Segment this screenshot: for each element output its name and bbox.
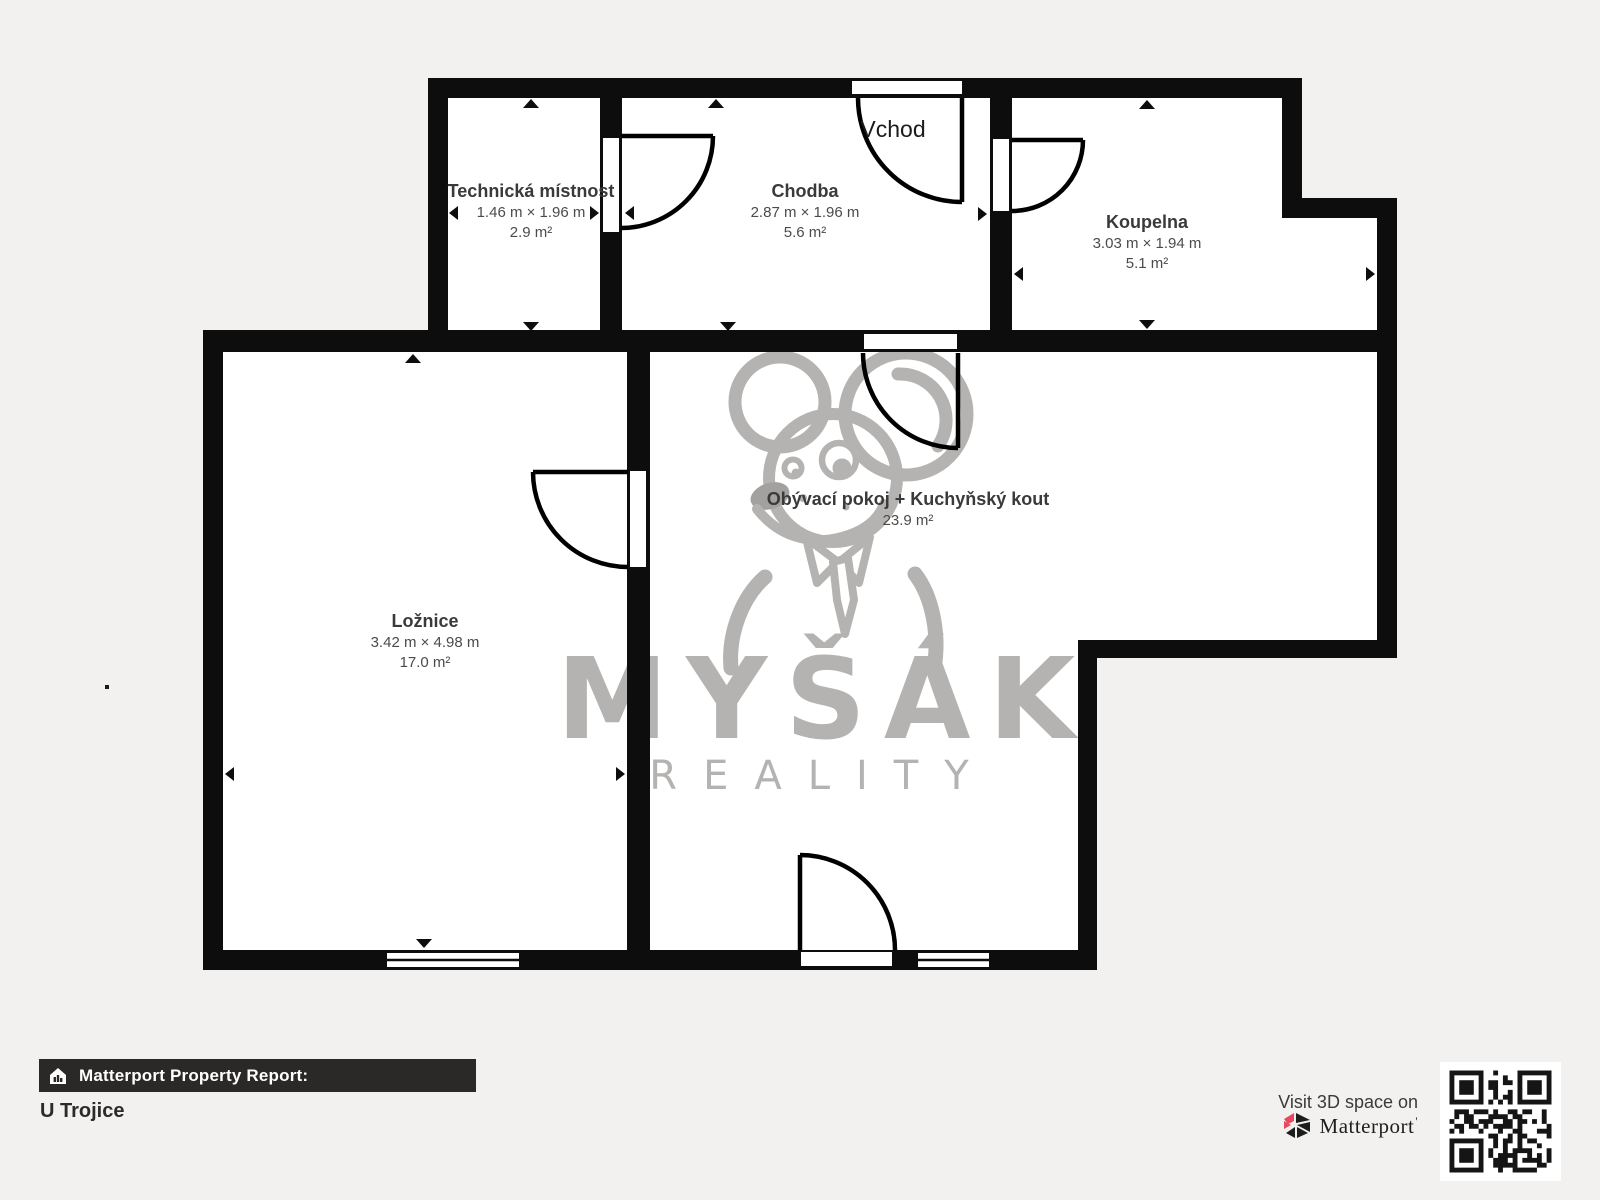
room-name: Obývací pokoj + Kuchyňský kout <box>767 489 1050 510</box>
qr-code <box>1440 1062 1561 1181</box>
loznice-door-opening <box>629 470 647 568</box>
room-name: Koupelna <box>1093 212 1202 233</box>
report-bar-label: Matterport Property Report: <box>79 1066 308 1086</box>
wall <box>1377 198 1397 658</box>
house-icon <box>49 1067 67 1085</box>
room-name: Ložnice <box>371 611 480 632</box>
room-area: 2.9 m² <box>448 224 615 242</box>
balcony-door-opening <box>800 951 893 967</box>
wall <box>203 330 1397 352</box>
visit-3d-text: Visit 3D space on <box>1278 1092 1418 1113</box>
wall <box>1078 640 1397 658</box>
watermark-subtitle-text: REALITY <box>649 753 994 799</box>
wall <box>627 330 650 970</box>
matterport-brand: Matterport' <box>1282 1111 1418 1141</box>
wall <box>1078 640 1097 970</box>
wall <box>1282 78 1302 218</box>
room-label-loznice: Ložnice 3.42 m × 4.98 m 17.0 m² <box>371 611 480 672</box>
room-name: Technická místnost <box>448 181 615 202</box>
entrance-door-opening <box>851 80 963 95</box>
mouse-left-pupil <box>792 469 801 478</box>
room-area: 5.6 m² <box>751 224 860 242</box>
room-label-koupelna: Koupelna 3.03 m × 1.94 m 5.1 m² <box>1093 212 1202 273</box>
room-name: Chodba <box>751 181 860 202</box>
room-dimensions: 1.46 m × 1.96 m <box>448 204 615 222</box>
room-dimensions: 3.03 m × 1.94 m <box>1093 235 1202 253</box>
koupelna-door-opening <box>992 138 1010 212</box>
trademark-tick: ' <box>1415 1114 1418 1128</box>
wall <box>990 98 1012 352</box>
living-window <box>917 952 990 968</box>
loznice-window <box>386 952 520 968</box>
room-area: 5.1 m² <box>1093 255 1202 273</box>
living-door-opening <box>863 333 958 350</box>
room-area: 23.9 m² <box>767 512 1050 530</box>
room-dimensions: 3.42 m × 4.98 m <box>371 634 480 652</box>
room-label-chodba: Chodba 2.87 m × 1.96 m 5.6 m² <box>751 181 860 242</box>
mouse-right-pupil <box>833 459 852 478</box>
property-name: U Trojice <box>40 1100 124 1123</box>
stray-dot <box>105 685 109 689</box>
wall <box>203 330 223 970</box>
floor-plan-report-page: MYŠÁK REALITY <box>0 0 1600 1200</box>
room-area: 17.0 m² <box>371 654 480 672</box>
entrance-label: Vchod <box>860 116 925 143</box>
room-dimensions: 2.87 m × 1.96 m <box>751 204 860 222</box>
wall <box>428 78 448 352</box>
room-label-obyvaci-pokoj: Obývací pokoj + Kuchyňský kout 23.9 m² <box>767 489 1050 530</box>
room-label-technicka-mistnost: Technická místnost 1.46 m × 1.96 m 2.9 m… <box>448 181 615 242</box>
matterport-wordmark: Matterport <box>1320 1114 1415 1138</box>
matterport-logo-icon <box>1282 1111 1312 1141</box>
report-bar: Matterport Property Report: <box>39 1059 476 1092</box>
